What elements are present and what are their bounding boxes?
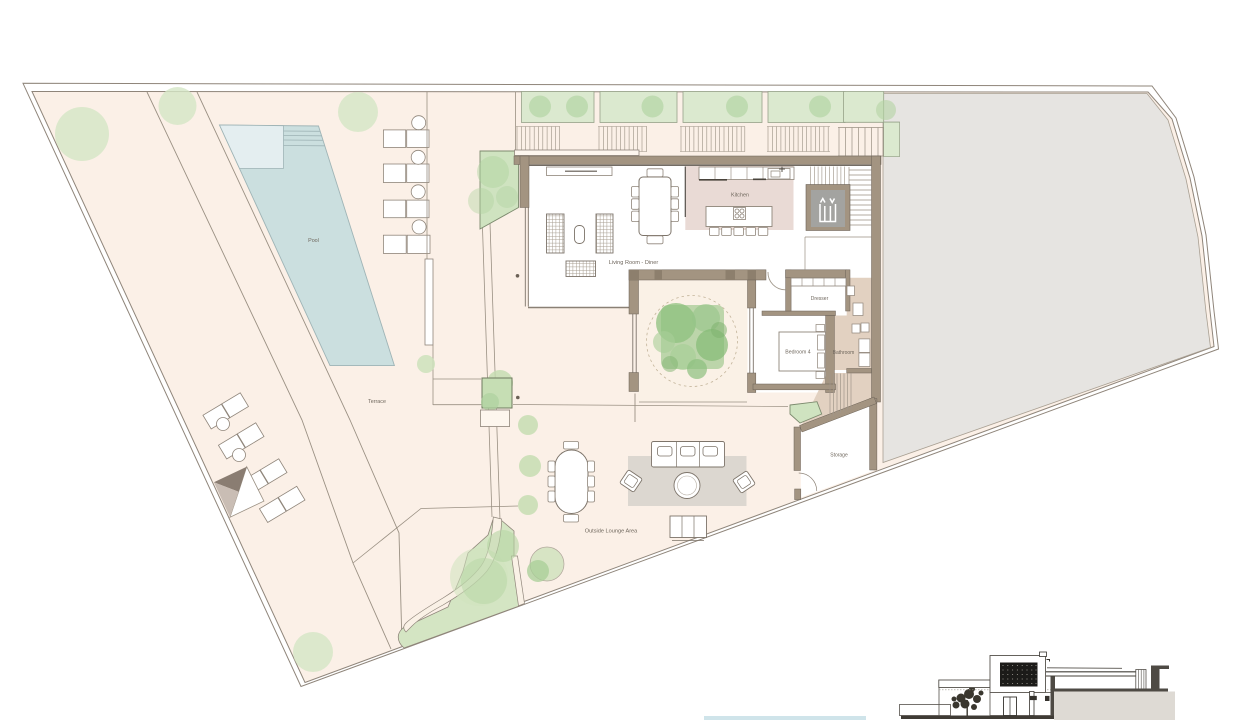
svg-text:Dresser: Dresser — [811, 296, 829, 302]
svg-text:Bathroom: Bathroom — [833, 350, 855, 356]
svg-text:Storage: Storage — [830, 453, 848, 459]
svg-text:Terrace: Terrace — [368, 399, 386, 405]
svg-text:Bedroom 4: Bedroom 4 — [785, 350, 810, 356]
svg-text:Pool: Pool — [308, 238, 319, 244]
svg-text:Outside Lounge Area: Outside Lounge Area — [585, 529, 638, 535]
svg-text:Living Room - Diner: Living Room - Diner — [609, 260, 659, 266]
svg-text:Kitchen: Kitchen — [731, 193, 749, 199]
